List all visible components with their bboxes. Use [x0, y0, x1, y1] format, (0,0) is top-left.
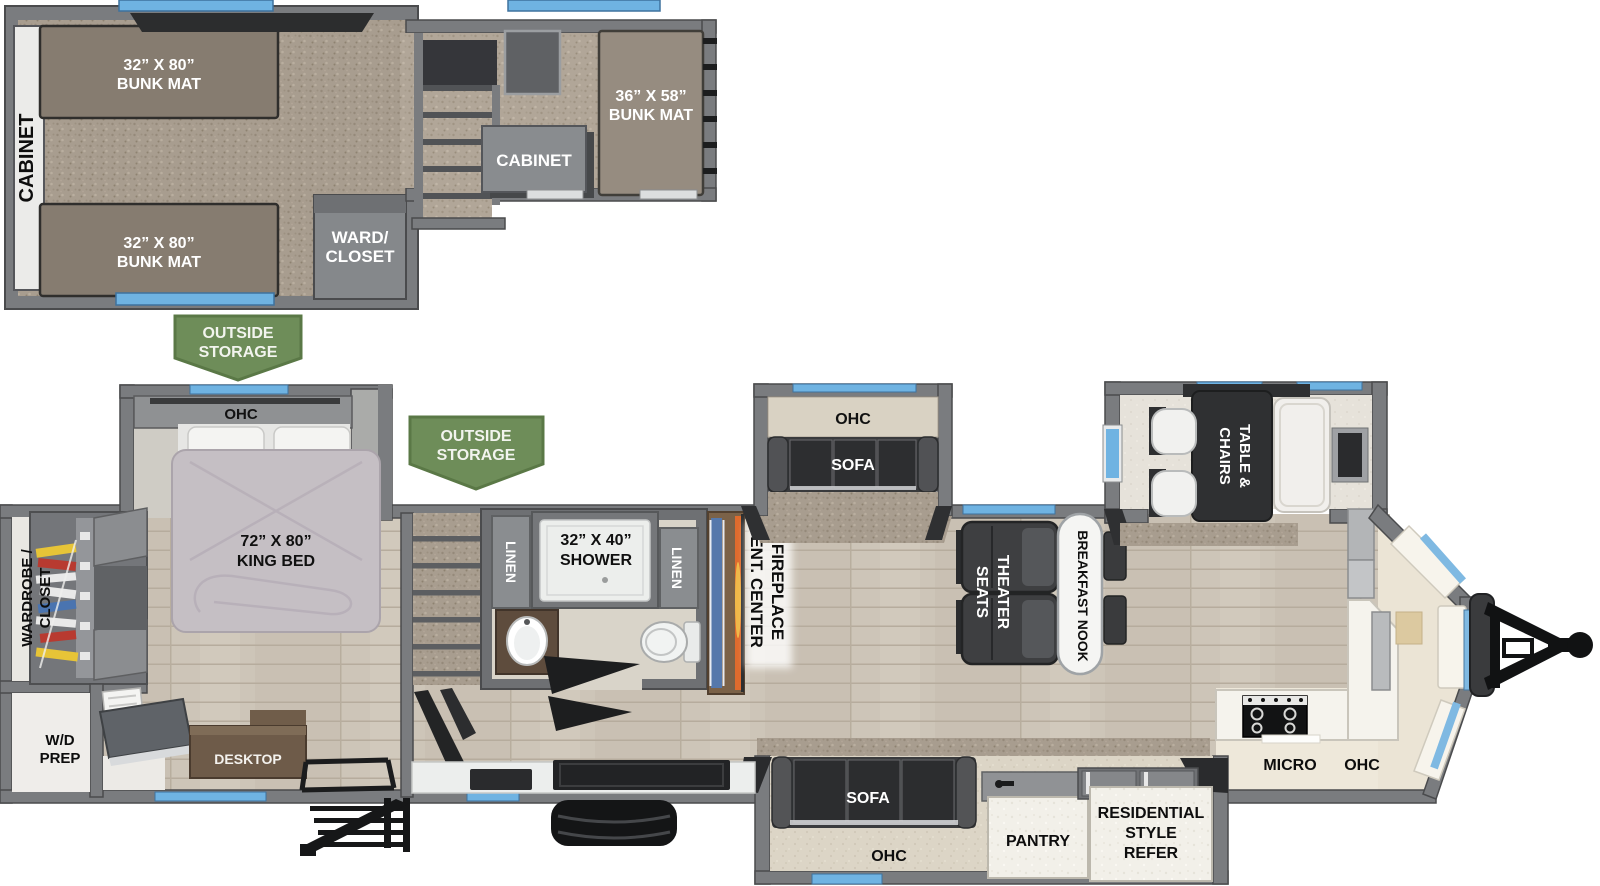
svg-text:PREP: PREP	[40, 750, 81, 767]
svg-text:CHAIRS: CHAIRS	[1216, 427, 1233, 485]
svg-text:36” X 58”: 36” X 58”	[615, 88, 686, 105]
svg-text:WARD/: WARD/	[332, 228, 389, 247]
svg-text:REFER: REFER	[1124, 845, 1179, 862]
svg-text:STORAGE: STORAGE	[437, 447, 516, 464]
svg-text:CLOSET: CLOSET	[37, 568, 54, 629]
svg-text:CLOSET: CLOSET	[326, 247, 396, 266]
svg-text:SOFA: SOFA	[831, 457, 875, 474]
svg-text:SHOWER: SHOWER	[560, 552, 632, 569]
svg-text:SEATS: SEATS	[973, 566, 990, 618]
svg-text:BUNK MAT: BUNK MAT	[117, 254, 201, 271]
svg-text:BUNK MAT: BUNK MAT	[609, 107, 693, 124]
svg-text:DESKTOP: DESKTOP	[214, 751, 281, 767]
svg-text:CABINET: CABINET	[16, 114, 38, 203]
svg-text:ENT. CENTER: ENT. CENTER	[747, 536, 766, 647]
svg-text:THEATER: THEATER	[994, 555, 1011, 630]
svg-text:STORAGE: STORAGE	[199, 344, 278, 361]
svg-text:OUTSIDE: OUTSIDE	[440, 428, 511, 445]
svg-text:KING BED: KING BED	[237, 553, 315, 570]
svg-text:OHC: OHC	[871, 848, 907, 865]
svg-text:32” X 80”: 32” X 80”	[123, 57, 194, 74]
svg-text:LINEN: LINEN	[669, 547, 685, 589]
svg-text:BUNK MAT: BUNK MAT	[117, 76, 201, 93]
svg-text:PANTRY: PANTRY	[1006, 833, 1070, 850]
svg-text:OHC: OHC	[835, 411, 871, 428]
svg-text:OHC: OHC	[1344, 757, 1380, 774]
svg-text:SOFA: SOFA	[846, 790, 890, 807]
svg-text:WARDROBE /: WARDROBE /	[19, 548, 36, 646]
svg-text:32” X 80”: 32” X 80”	[123, 235, 194, 252]
svg-text:OUTSIDE: OUTSIDE	[202, 325, 273, 342]
svg-text:W/D: W/D	[45, 732, 74, 749]
svg-text:TABLE &: TABLE &	[1236, 424, 1253, 488]
svg-text:OHC: OHC	[224, 406, 258, 423]
svg-text:RESIDENTIAL: RESIDENTIAL	[1098, 805, 1205, 822]
svg-text:32” X 40”: 32” X 40”	[560, 532, 631, 549]
svg-text:BREAKFAST NOOK: BREAKFAST NOOK	[1075, 530, 1091, 661]
svg-text:MICRO: MICRO	[1263, 757, 1316, 774]
svg-text:LINEN: LINEN	[503, 541, 519, 583]
svg-text:CABINET: CABINET	[496, 151, 572, 170]
svg-text:FIREPLACE: FIREPLACE	[768, 544, 787, 640]
svg-text:STYLE: STYLE	[1125, 825, 1177, 842]
svg-text:72” X 80”: 72” X 80”	[240, 533, 311, 550]
